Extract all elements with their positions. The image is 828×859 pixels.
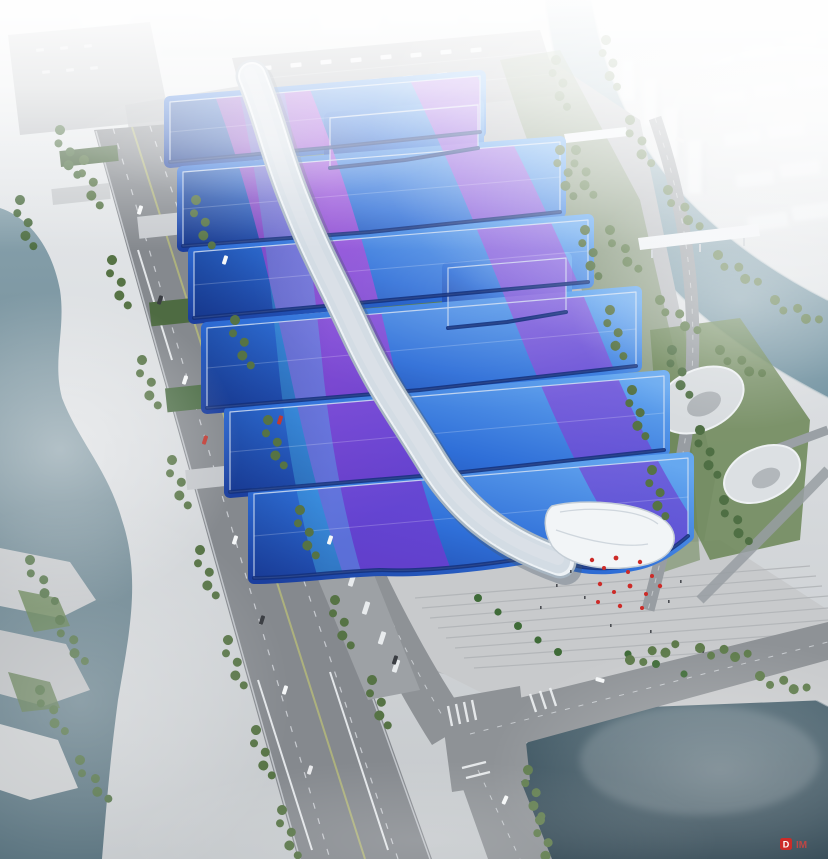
watermark-text: IM	[796, 840, 807, 851]
scene-canvas: D IM	[0, 0, 828, 859]
watermark-logo-letter: D	[783, 840, 790, 850]
aerial-rendering: Hazy aerial rendering of a huge exhibiti…	[0, 0, 828, 859]
